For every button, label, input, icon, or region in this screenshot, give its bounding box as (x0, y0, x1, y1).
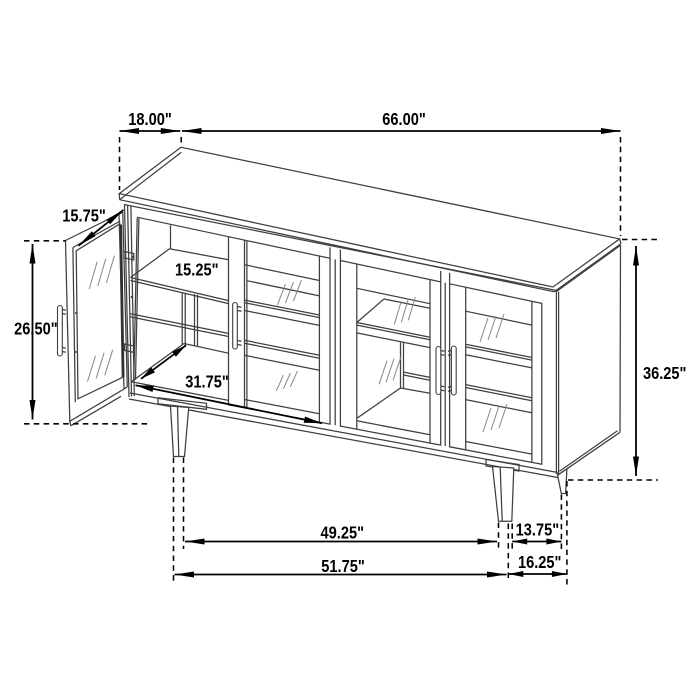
svg-text:13.75": 13.75" (516, 520, 560, 540)
svg-text:15.25": 15.25" (175, 260, 219, 280)
svg-text:49.25": 49.25" (321, 523, 365, 543)
svg-text:66.00": 66.00" (382, 109, 426, 129)
svg-text:16.25": 16.25" (518, 552, 562, 572)
svg-text:36.25": 36.25" (643, 363, 687, 383)
svg-text:31.75": 31.75" (185, 372, 229, 392)
svg-text:51.75": 51.75" (321, 556, 365, 576)
svg-text:18.00": 18.00" (128, 109, 172, 129)
svg-text:15.75": 15.75" (62, 206, 106, 226)
svg-text:26.50": 26.50" (14, 318, 58, 338)
